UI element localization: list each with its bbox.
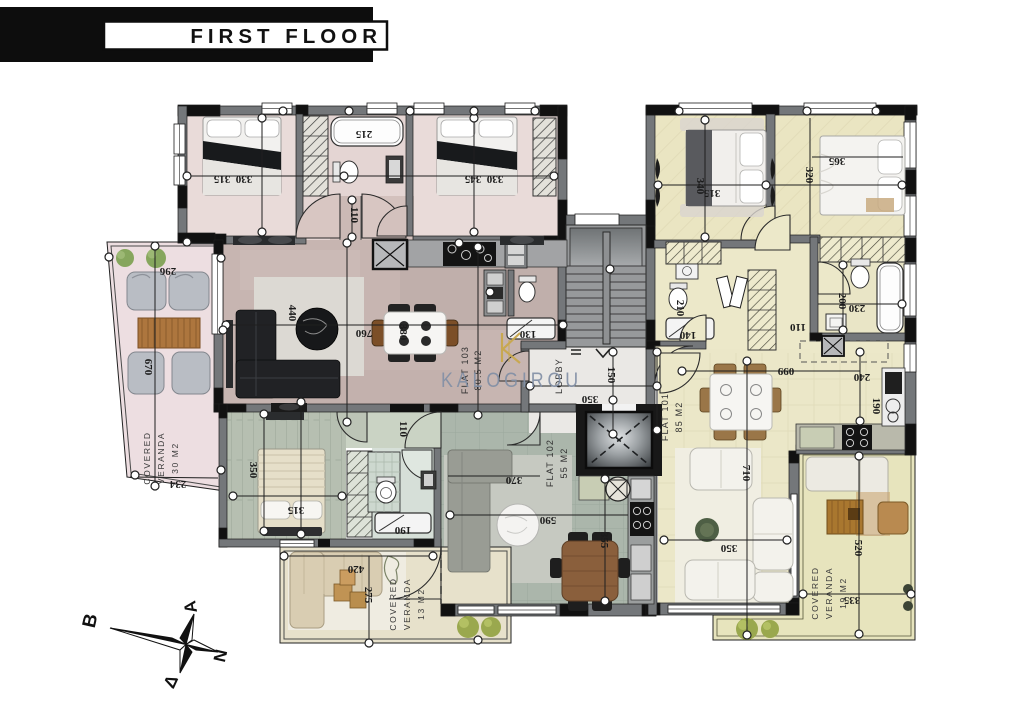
svg-text:30 M2: 30 M2 [170,442,180,474]
svg-text:140: 140 [679,329,696,341]
svg-text:VERANDA: VERANDA [824,567,834,619]
svg-text:130: 130 [519,328,536,340]
svg-text:760: 760 [355,327,372,339]
svg-text:234: 234 [169,478,186,490]
svg-text:210: 210 [674,300,686,317]
svg-text:350: 350 [247,462,259,479]
svg-text:315: 315 [287,504,304,516]
svg-text:FLAT 101: FLAT 101 [660,393,670,441]
svg-text:COVERED: COVERED [142,431,152,484]
svg-text:330 315: 330 315 [213,173,252,185]
svg-text:110: 110 [397,421,409,437]
svg-text:19 M2: 19 M2 [838,577,848,609]
svg-text:B: B [79,612,103,630]
svg-text:KALOGIROU: KALOGIROU [441,369,582,392]
svg-text:590: 590 [539,514,556,526]
svg-text:150: 150 [605,367,617,384]
svg-text:670: 670 [142,359,154,376]
svg-text:FLAT 102: FLAT 102 [545,439,555,487]
svg-text:N: N [210,648,231,664]
svg-text:200: 200 [836,293,848,310]
svg-text:380: 380 [397,324,409,341]
svg-text:365: 365 [828,155,845,167]
svg-text:COVERED: COVERED [810,566,820,619]
svg-text:215: 215 [355,128,372,140]
svg-text:315: 315 [703,187,720,199]
svg-text:190: 190 [870,398,882,415]
svg-text:520: 520 [852,540,864,557]
svg-text:110: 110 [790,321,806,333]
svg-text:Δ: Δ [160,672,182,691]
svg-text:FIRST FLOOR: FIRST FLOOR [190,25,382,48]
svg-text:350: 350 [581,393,598,405]
svg-text:320: 320 [803,167,815,184]
svg-text:VERANDA: VERANDA [402,578,412,630]
svg-text:440: 440 [286,305,298,322]
svg-text:330 345: 330 345 [464,173,503,185]
svg-text:710: 710 [740,465,752,482]
svg-text:VERANDA: VERANDA [156,432,166,484]
svg-text:13 M2: 13 M2 [416,588,426,620]
svg-text:110: 110 [348,207,360,223]
svg-text:350: 350 [720,542,737,554]
svg-text:420: 420 [347,563,364,575]
svg-text:355: 355 [598,532,610,549]
svg-text:240: 240 [853,371,870,383]
svg-text:A: A [180,599,201,614]
svg-text:230: 230 [848,302,865,314]
svg-text:099: 099 [777,365,794,377]
svg-text:370: 370 [505,474,522,486]
svg-text:296: 296 [159,265,176,277]
svg-text:COVERED: COVERED [388,577,398,630]
svg-text:190: 190 [394,524,411,536]
svg-text:85 M2: 85 M2 [674,401,684,432]
svg-text:275: 275 [362,587,374,604]
svg-text:55 M2: 55 M2 [559,447,569,478]
